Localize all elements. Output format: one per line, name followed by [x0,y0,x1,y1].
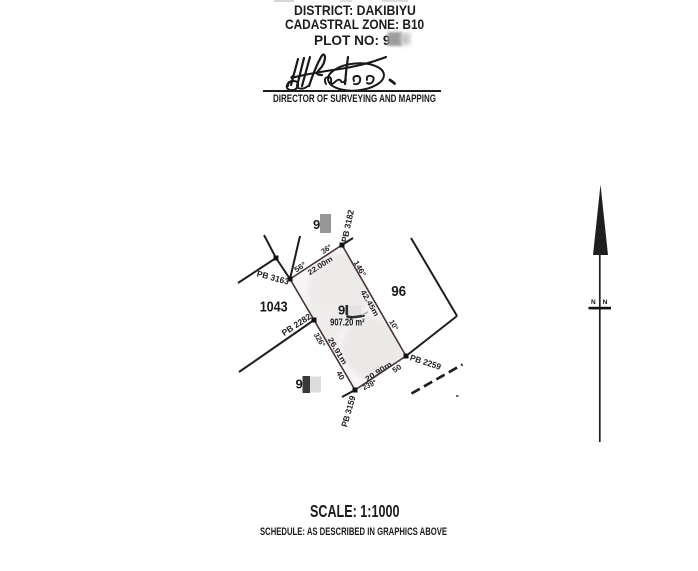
svg-text:N: N [591,299,596,306]
svg-text:N: N [603,299,608,306]
svg-text:9: 9 [296,376,303,391]
svg-text:PB 3182: PB 3182 [339,209,356,244]
svg-text:907.20 m²: 907.20 m² [330,317,365,328]
svg-text:PB 3159: PB 3159 [339,394,357,428]
svg-text:96: 96 [391,283,406,300]
svg-text:1043: 1043 [260,299,288,315]
svg-text:9: 9 [313,217,320,232]
svg-text:9: 9 [338,303,345,318]
svg-text:PB 2259: PB 2259 [409,352,443,371]
